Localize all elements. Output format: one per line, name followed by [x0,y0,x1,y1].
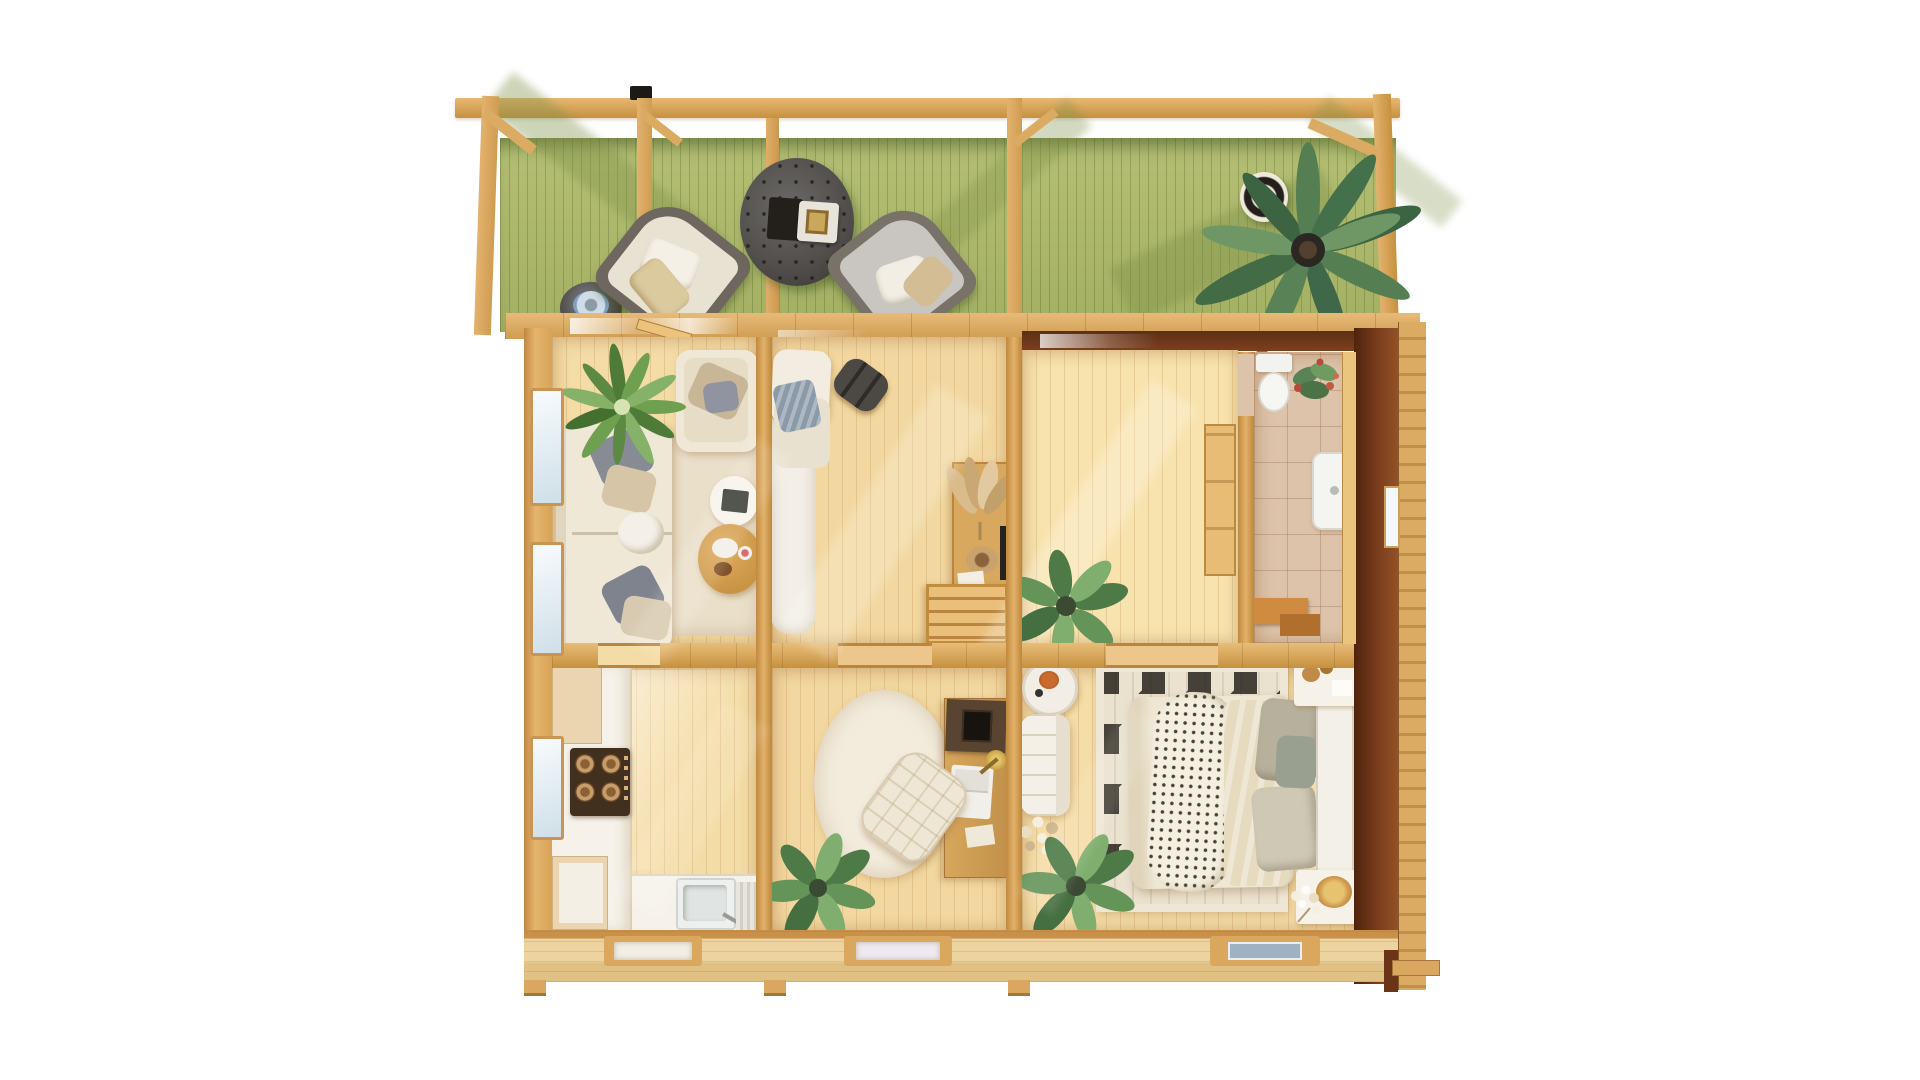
kitchen-cooktop [570,748,630,816]
right-exterior-wall [1354,328,1400,984]
nightstand-card [1332,680,1352,696]
entry-mat-office [856,942,940,960]
shower-drain [1330,486,1339,495]
bed-headboard [1316,690,1354,890]
bed-pillow-2 [1250,783,1321,872]
doorway-largeroom-bedroom [1106,643,1218,668]
burner [575,782,595,802]
entry-threshold-kitchen [604,936,702,966]
side-table-orange-decor [1039,671,1059,689]
kitchen-upper-cabinet [552,666,602,744]
sink-basin [683,885,727,921]
office-plant [766,836,878,940]
armchair-pillow-gray [702,380,740,414]
bedroom-plant [1020,834,1138,940]
office-papers [965,824,996,848]
nightstand-wood-plate [1302,666,1320,682]
large-room-plant [1016,546,1128,658]
doorway-hall-office [838,643,932,668]
coffee-table-bowl [714,562,732,576]
kitchen-floor-gleam [630,670,760,870]
left-window-kitchen [530,736,564,840]
nightstand-flowers [1286,882,1332,932]
entry-mat-kitchen [614,942,692,960]
foundation-stub-2 [764,980,786,996]
kitchen-lower-cabinet [552,856,608,930]
hall-wooden-stairs [926,584,1008,644]
large-room-terrace-door-glint [1040,334,1158,348]
entry-mat-bedroom-blue [1228,942,1302,960]
doorway-living-kitchen [598,643,660,668]
bathroom-bench-step [1280,614,1320,636]
bathroom-door-gap [1238,354,1254,416]
tray-frame [805,209,829,234]
burner [601,782,621,802]
kitchen-drainboard [736,882,756,930]
sofa-pillow-beige-2 [619,594,673,642]
bedroom-lounge-chair [1020,714,1070,816]
sofa-pillow-round [618,512,664,554]
middle-wall [552,643,1354,668]
foundation-stub-1 [524,980,546,996]
large-room-door-panel [1204,424,1236,576]
bathroom-flower-plant [1284,350,1346,412]
coffee-table-flowers [738,546,752,560]
cabinet-door [559,863,603,923]
cabin-top-view-render [0,0,1920,1080]
burner [575,754,595,774]
right-wall-log-ends [1398,322,1426,990]
right-wall-window [1384,486,1400,548]
cooktop-knobs [624,756,628,804]
coffee-table-plate [712,538,738,558]
wall-living-hall [756,337,772,930]
left-window-living-2 [530,542,564,656]
bed-pillow-small [1275,735,1318,789]
entry-threshold-office [844,936,952,966]
bedroom-round-side-table [1022,660,1078,716]
burner [601,754,621,774]
office-storage-box [945,699,1007,753]
pergola-post-left [474,96,499,335]
living-agave-plant [566,352,678,462]
pergola-top-beam [455,98,1400,118]
lounge-chair-arm [1056,714,1070,816]
corner-log-horizontal [1392,960,1440,976]
ottoman-tray [797,201,840,244]
foundation-stub-3 [1008,980,1030,996]
entry-threshold-bedroom [1210,936,1320,966]
box-label [961,710,992,743]
living-coffee-table [698,524,762,594]
wall-hall-largeroom [1006,337,1022,930]
side-table-book [721,489,749,514]
left-window-living-1 [530,388,564,506]
kitchen-sink [676,878,736,930]
side-table-dark-dot [1035,689,1043,697]
bathroom-right-counter [1342,352,1356,644]
